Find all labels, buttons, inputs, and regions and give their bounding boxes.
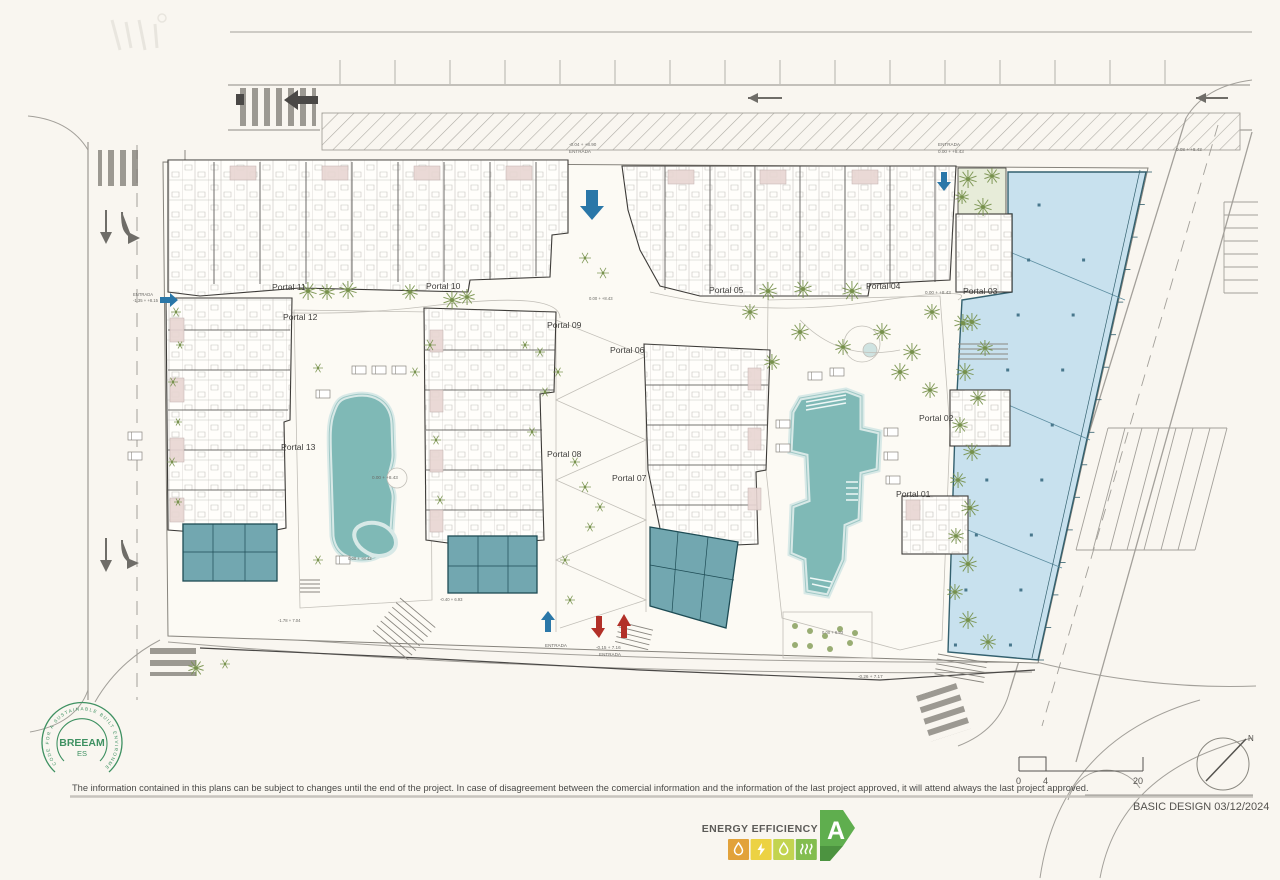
portal-label: Portal 04 xyxy=(866,281,901,291)
portal-label: Portal 08 xyxy=(547,449,582,459)
tree-dot-icon xyxy=(792,642,798,648)
svg-text:CODE FOR A SUSTAINABLE BUILT E: CODE FOR A SUSTAINABLE BUILT ENVIRONMENT xyxy=(0,0,119,771)
sun-lounger xyxy=(352,366,366,374)
scale-bar: 0 4 20 xyxy=(1016,757,1143,786)
tree-dot-icon xyxy=(827,646,833,652)
tree-dot-icon xyxy=(852,630,858,636)
sun-lounger xyxy=(128,452,142,460)
building-top-left xyxy=(168,160,568,296)
portal-label: Portal 12 xyxy=(283,312,318,322)
elevation-label: 0.08 + +8.43 xyxy=(1176,147,1202,152)
tree-dot-icon xyxy=(792,623,798,629)
sun-lounger xyxy=(316,390,330,398)
portal-label: Portal 11 xyxy=(272,282,306,292)
sun-lounger xyxy=(128,432,142,440)
building-top-right xyxy=(622,166,956,296)
sun-lounger xyxy=(776,420,790,428)
scale-end: 20 xyxy=(1133,776,1143,786)
floor-plan-svg: Portal 01Portal 02Portal 03Portal 04Port… xyxy=(0,0,1280,880)
elevation-label: -0.04 + +8.90 xyxy=(569,142,597,147)
sun-lounger xyxy=(808,372,822,380)
site-plan-page: Portal 01Portal 02Portal 03Portal 04Port… xyxy=(0,0,1280,880)
energy-rating: A xyxy=(827,817,845,845)
bottom-right-crosswalk xyxy=(916,683,971,742)
elevation-label: 0.00 + +8.43 xyxy=(348,556,372,561)
elevation-label: -0.40 + 6.93 xyxy=(440,597,463,602)
sun-lounger xyxy=(884,452,898,460)
sun-lounger xyxy=(884,428,898,436)
elevation-label: 0.00 + +8.43 xyxy=(372,475,398,480)
portal-label: Portal 07 xyxy=(612,473,647,483)
energy-scale xyxy=(728,839,817,860)
energy-label: ENERGY EFFICIENCY xyxy=(702,823,818,835)
bush-icon xyxy=(220,660,230,669)
elevation-label: -1.78 + 7.04 xyxy=(278,618,301,623)
building-left-vertical xyxy=(166,298,292,536)
elevation-label: -1.35 + +8.15 xyxy=(133,298,159,303)
basic-design-label: BASIC DESIGN 03/12/2024 xyxy=(1133,801,1269,813)
left-bottom-crosswalk xyxy=(150,642,196,676)
elevation-label: -0.15 + 7.16 xyxy=(596,645,621,650)
elevation-label: -0.26 + 7.17 xyxy=(858,674,883,679)
energy-arrow-fold xyxy=(820,846,843,861)
entrance-label: ENTRADA xyxy=(599,652,622,657)
breeam-ring-text: CODE FOR A SUSTAINABLE BUILT ENVIRONMENT xyxy=(0,0,119,771)
scale-start: 0 xyxy=(1016,776,1021,786)
entrance-label: ENTRADA xyxy=(545,643,568,648)
entrance-label: ENTRADA xyxy=(133,292,153,297)
tree-dot-icon xyxy=(847,640,853,646)
sun-lounger xyxy=(372,366,386,374)
portal-label: Portal 09 xyxy=(547,320,582,330)
sun-lounger xyxy=(392,366,406,374)
portal-label: Portal 03 xyxy=(963,286,998,296)
elevation-label: 0.00 + +8.43 xyxy=(938,149,964,154)
north-label: N xyxy=(1248,734,1254,743)
sun-lounger xyxy=(886,476,900,484)
top-parking-ticks xyxy=(340,60,1165,84)
breeam-region: ES xyxy=(77,749,87,758)
top-crosswalk xyxy=(234,88,316,126)
elevation-label: 0.00 + +8.43 xyxy=(589,296,613,301)
portal-label: Portal 06 xyxy=(610,345,645,355)
entrance-label: ENTRADA xyxy=(569,149,592,154)
elevation-label: 0.00 + +8.43 xyxy=(925,290,951,295)
breeam-logo: CODE FOR A SUSTAINABLE BUILT ENVIRONMENT… xyxy=(0,0,122,772)
portal-label: Portal 02 xyxy=(919,413,954,423)
top-hatched-strip xyxy=(322,113,1240,150)
energy-badge: ENERGY EFFICIENCY A xyxy=(702,810,855,861)
elevation-label: 0.00 + 6.93 xyxy=(822,630,844,635)
portal-label: Portal 13 xyxy=(281,442,316,452)
entrance-label: ENTRADA xyxy=(938,142,961,147)
building-middle xyxy=(424,308,556,546)
portal-label: Portal 05 xyxy=(709,285,744,295)
tree-dot-icon xyxy=(807,628,813,634)
breeam-name: BREEAM xyxy=(59,737,105,749)
tree-dot-icon xyxy=(807,643,813,649)
disclaimer-text: The information contained in this plans … xyxy=(72,783,1089,793)
sun-lounger xyxy=(830,368,844,376)
north-compass: N xyxy=(1197,734,1254,790)
corner-watermark xyxy=(112,14,166,50)
portal-label: Portal 01 xyxy=(896,489,931,499)
building-portal03 xyxy=(956,168,1012,292)
portal-label: Portal 10 xyxy=(426,281,461,291)
left-crosswalk xyxy=(98,150,142,186)
sun-lounger xyxy=(776,444,790,452)
scale-mid: 4 xyxy=(1043,776,1048,786)
